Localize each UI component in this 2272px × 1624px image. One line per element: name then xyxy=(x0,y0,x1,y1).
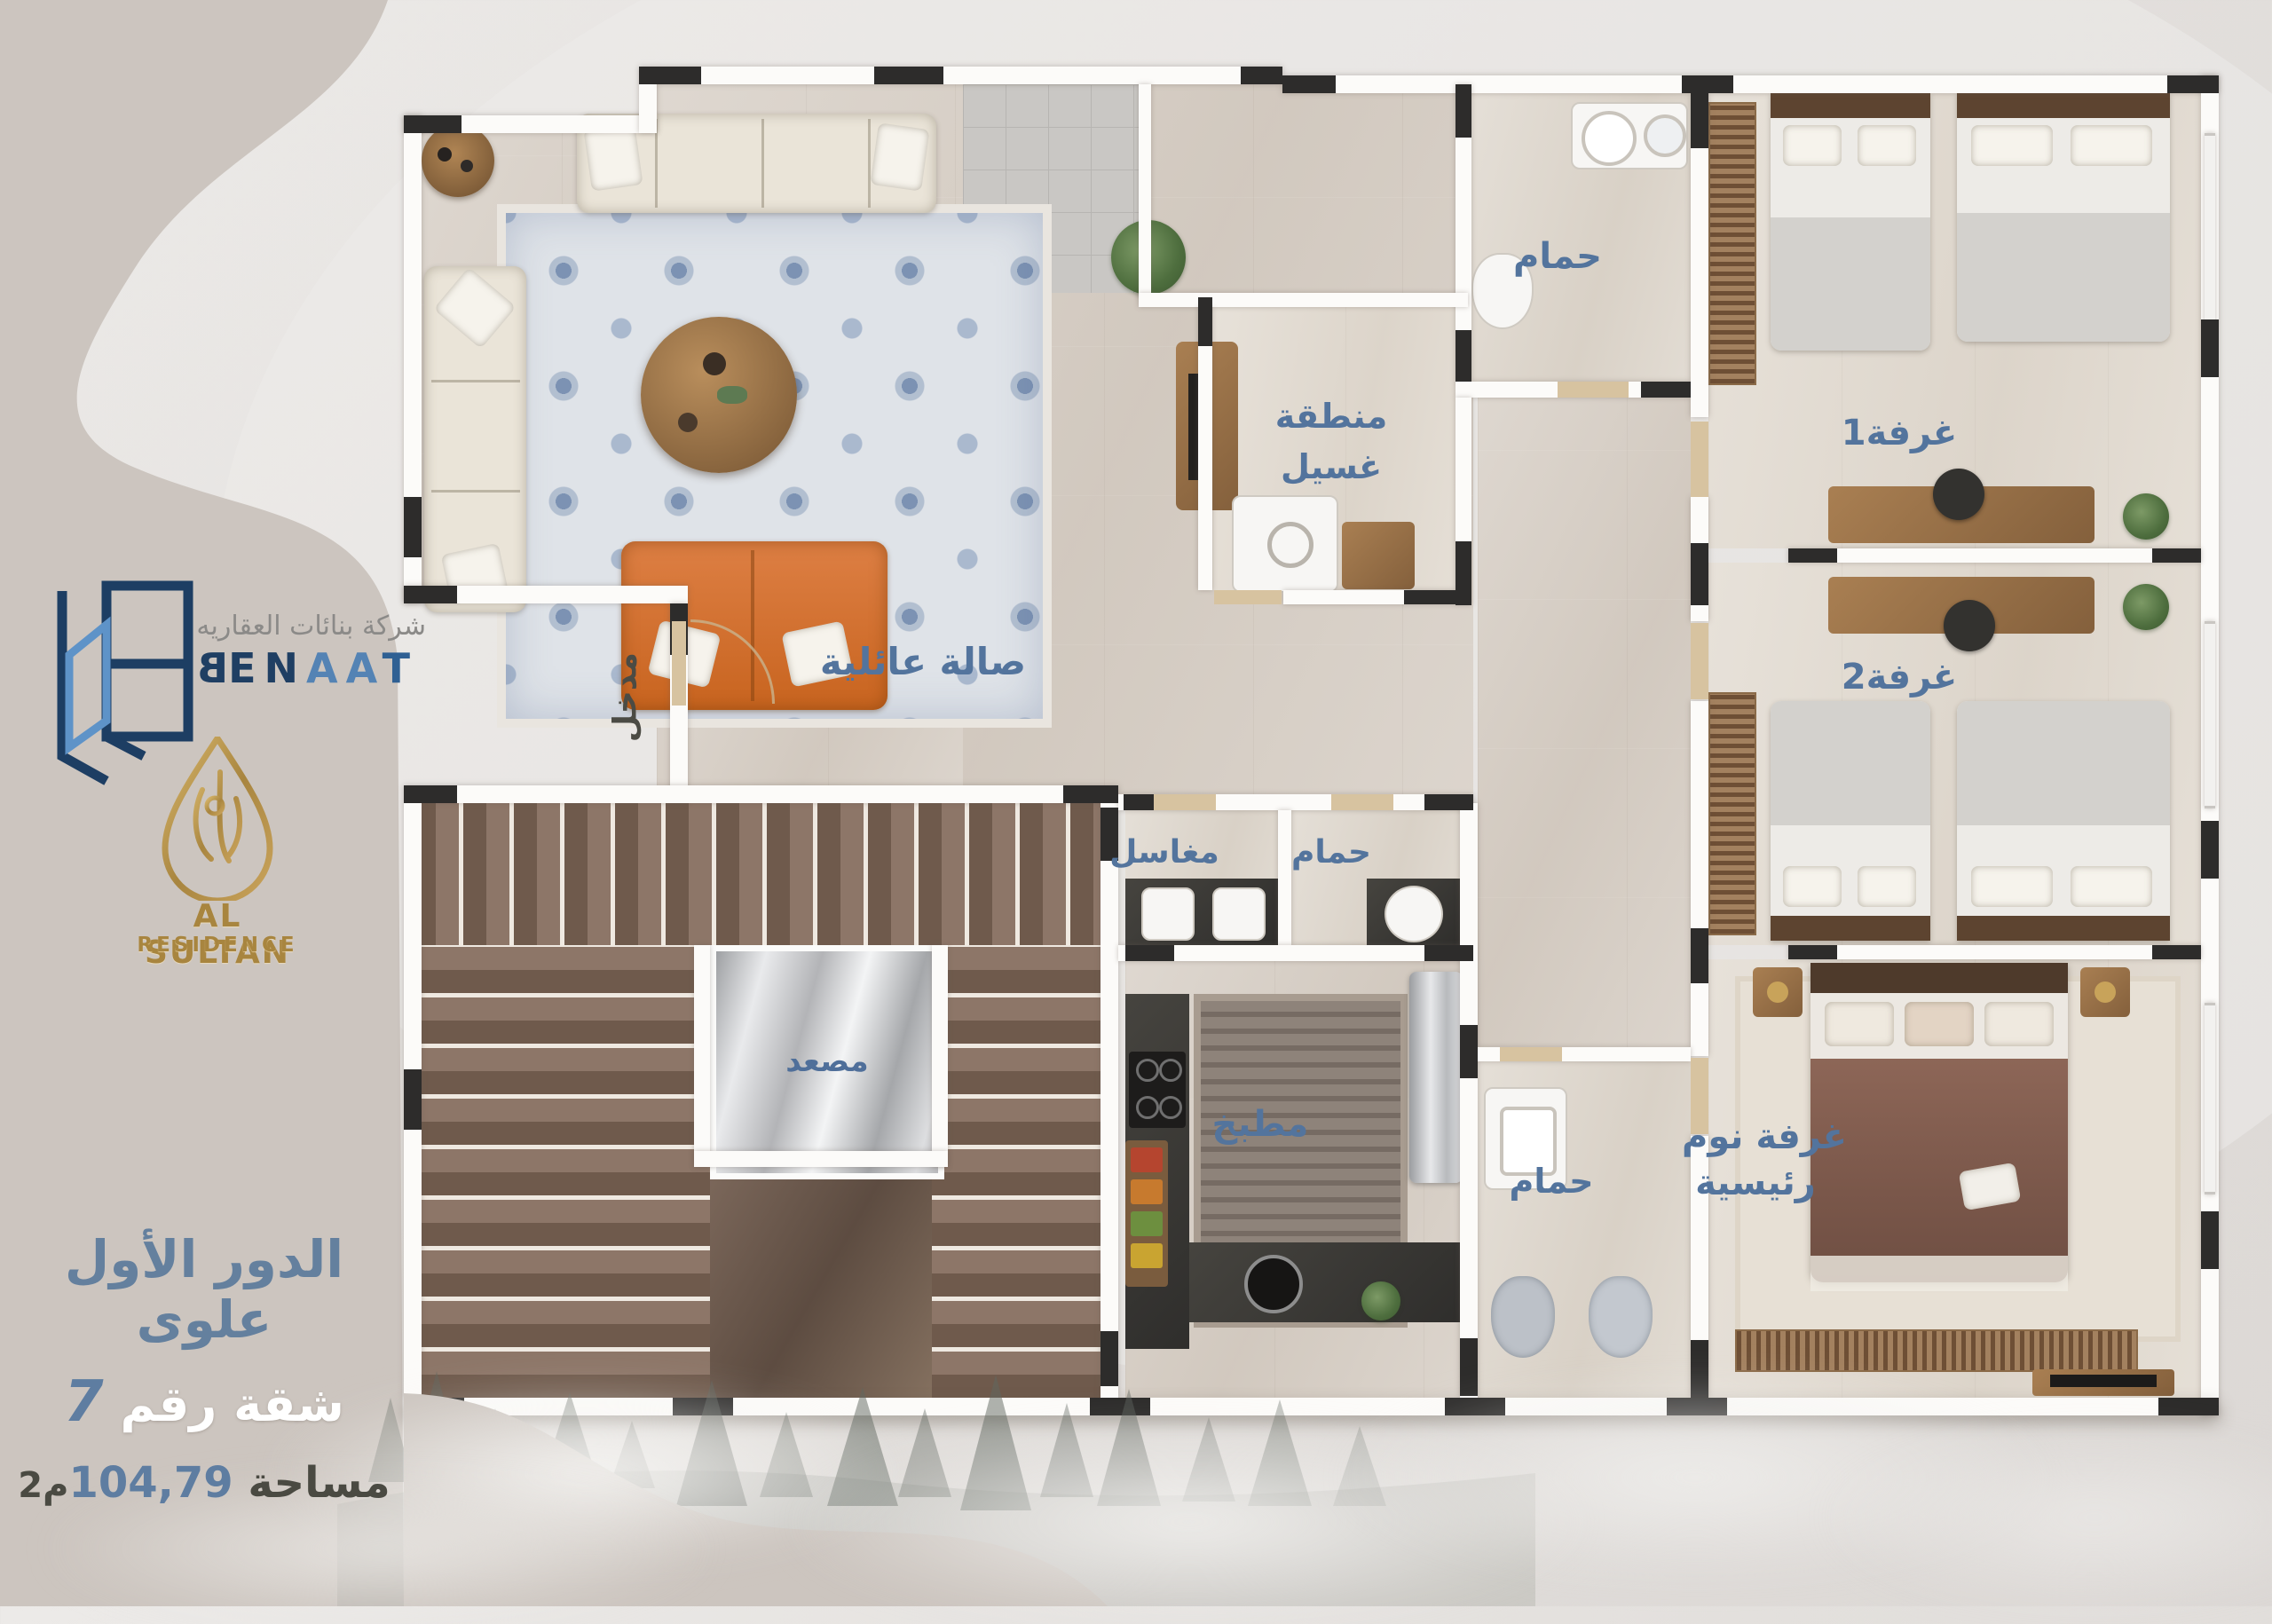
wall-black-segment xyxy=(404,1069,422,1130)
apartment-label: شقة رقم xyxy=(121,1376,344,1432)
bedroom1-bed2 xyxy=(1957,93,2170,342)
wall-black-segment xyxy=(1100,1331,1118,1386)
area-label: مساحة xyxy=(248,1458,390,1508)
laundry-cabinet xyxy=(1342,522,1415,589)
door-sill xyxy=(672,621,686,706)
washing-machine xyxy=(1232,495,1338,593)
label-master-line2: رئيسية xyxy=(1658,1163,1853,1203)
bathroom-mid-toilet xyxy=(1384,886,1443,942)
sink-basin-1 xyxy=(1141,887,1195,941)
wall-black-segment xyxy=(874,67,943,84)
label-bathroom-top: حمام xyxy=(1469,236,1646,277)
window xyxy=(2205,133,2215,325)
wall-black-segment xyxy=(1241,67,1282,84)
benaat-letter-t: T xyxy=(383,644,418,692)
master-tv-console xyxy=(2032,1369,2174,1396)
wall xyxy=(657,67,1282,84)
wall-black-segment xyxy=(639,67,701,84)
wall-black-segment xyxy=(1455,541,1471,605)
apartment-number-line: شقة رقم 7 xyxy=(18,1369,390,1435)
wall xyxy=(1460,803,1478,1398)
label-family-hall: صالة عائلية xyxy=(768,641,1078,683)
stove xyxy=(1129,1052,1186,1128)
benaat-letter-b: B xyxy=(189,644,228,692)
wall xyxy=(1282,75,2219,93)
wall-black-segment xyxy=(1788,945,1837,959)
wall-black-segment xyxy=(1788,548,1837,563)
wall-black-segment xyxy=(404,586,457,603)
label-bathroom-bottom: حمام xyxy=(1471,1163,1631,1202)
bedroom2-bed2 xyxy=(1957,701,2170,941)
wall-black-segment xyxy=(2152,548,2201,563)
wall-black-segment xyxy=(2167,75,2219,93)
benaat-name-english: BENAAT xyxy=(189,644,438,692)
label-elevator: مصعد xyxy=(785,1045,868,1079)
wall-black-segment xyxy=(1691,543,1708,605)
bedroom1-office-chair xyxy=(1933,469,1984,520)
label-laundry-line1: منطقة xyxy=(1242,398,1420,437)
wall-black-segment xyxy=(2152,945,2201,959)
alsultan-emblem-icon xyxy=(158,737,278,901)
wall-black-segment xyxy=(2158,1398,2219,1415)
kitchen-counter-bottom xyxy=(1189,1242,1460,1322)
wall-black-segment xyxy=(2201,319,2219,377)
area-unit: م2 xyxy=(18,1465,68,1506)
wall-black-segment xyxy=(1455,330,1471,382)
label-bedroom1: غرفة1 xyxy=(1810,413,1988,453)
master-wardrobe xyxy=(1735,1329,2138,1372)
wall-black-segment xyxy=(1691,93,1708,148)
wall xyxy=(932,945,948,1167)
coffee-table xyxy=(641,317,797,473)
wall-black-segment xyxy=(404,1398,464,1415)
food-shelf xyxy=(1125,1140,1168,1287)
kitchen-plant xyxy=(1361,1281,1400,1320)
wall-black-segment xyxy=(1090,1398,1150,1415)
wall xyxy=(1788,945,2201,959)
wall-black-segment xyxy=(1404,590,1455,604)
round-side-table xyxy=(422,124,494,197)
bathroom-bottom-bidet xyxy=(1589,1276,1653,1358)
label-bathroom-mid: حمام xyxy=(1260,834,1402,871)
sink-basin-2 xyxy=(1212,887,1266,941)
corridor-floor xyxy=(1478,382,1691,1047)
wall-black-segment xyxy=(1691,928,1708,983)
wall-black-segment xyxy=(404,115,461,133)
wall-black-segment xyxy=(1063,785,1118,803)
floor-title: الدور الأول علوى xyxy=(18,1229,390,1350)
kitchen-sink xyxy=(1244,1255,1303,1313)
wall-black-segment xyxy=(1691,1340,1708,1398)
door-sill xyxy=(1691,623,1708,699)
wall-black-segment xyxy=(1460,1025,1478,1078)
door-sill xyxy=(1214,590,1282,604)
bedroom1-wardrobe xyxy=(1708,102,1756,385)
stairs-lower-right-flight xyxy=(932,945,1100,1398)
wall xyxy=(1788,548,2201,563)
label-laundry-line2: غسيل xyxy=(1242,448,1420,487)
window xyxy=(2205,621,2215,808)
wall-black-segment xyxy=(404,785,457,803)
benaat-letters-aa: AA xyxy=(306,644,383,692)
bathroom-top-vanity xyxy=(1571,102,1688,169)
wall-black-segment xyxy=(1424,945,1473,961)
door-sill xyxy=(1154,794,1216,810)
door-sill xyxy=(1331,794,1393,810)
fridge xyxy=(1409,972,1463,1183)
bedroom2-office-chair xyxy=(1944,600,1995,651)
bedroom2-wardrobe xyxy=(1708,692,1756,935)
label-sinks: مغاسل xyxy=(1093,834,1235,871)
door-sill xyxy=(1558,382,1629,398)
master-nightstand-right xyxy=(2080,967,2130,1017)
window xyxy=(2205,1003,2215,1194)
label-entrance: مدخل xyxy=(607,640,643,755)
bedroom1-bed1 xyxy=(1771,93,1930,351)
stairs-lower-left-flight xyxy=(413,945,710,1398)
unit-info-block: الدور الأول علوى شقة رقم 7 مساحة 104,79م… xyxy=(18,1229,390,1508)
wall-black-segment xyxy=(2201,821,2219,879)
wall-black-segment xyxy=(1682,75,1733,93)
wall-black-segment xyxy=(673,1398,733,1415)
wall-black-segment xyxy=(1667,1398,1727,1415)
benaat-letters-en: EN xyxy=(228,644,306,692)
label-master-line1: غرفة نوم xyxy=(1658,1116,1871,1157)
stairs-landing xyxy=(710,1167,932,1398)
stairs-upper-flight xyxy=(413,803,1100,945)
label-bedroom2: غرفة2 xyxy=(1810,657,1988,698)
door-sill xyxy=(1500,1047,1562,1061)
sofa-left xyxy=(424,266,526,612)
wall xyxy=(694,1151,948,1167)
wall-black-segment xyxy=(2201,1211,2219,1269)
wall-black-segment xyxy=(1455,84,1471,138)
wall-black-segment xyxy=(1460,1338,1478,1396)
master-nightstand-left xyxy=(1753,967,1803,1017)
elevator-cab: مصعد xyxy=(710,945,944,1179)
wall xyxy=(1139,84,1151,297)
area-line: مساحة 104,79م2 xyxy=(18,1458,390,1508)
wall-black-segment xyxy=(1424,794,1473,810)
wall xyxy=(1100,803,1118,1398)
label-kitchen: مطبخ xyxy=(1180,1104,1340,1145)
bedroom2-bed1 xyxy=(1771,701,1930,941)
wall-black-segment xyxy=(1198,297,1212,346)
bathroom-bottom-toilet xyxy=(1491,1276,1555,1358)
door-sill xyxy=(1691,422,1708,497)
wall-black-segment xyxy=(1125,945,1174,961)
wall xyxy=(694,945,710,1167)
bedroom2-plant xyxy=(2123,584,2169,630)
poster-page: { "brand": { "name_ar": "شركة بنائات الع… xyxy=(0,0,2272,1606)
wall xyxy=(1691,701,1708,1056)
alsultan-subtitle: RESIDENCE xyxy=(115,934,319,957)
wall-black-segment xyxy=(404,497,422,557)
wall xyxy=(1278,810,1291,945)
wall-black-segment xyxy=(1282,75,1336,93)
wall xyxy=(1198,307,1212,590)
wall-black-segment xyxy=(1445,1398,1505,1415)
wall-black-segment xyxy=(1641,382,1691,398)
bedroom1-plant xyxy=(2123,493,2169,540)
benaat-name-arabic: شركة بنائات العقاريه xyxy=(191,611,426,642)
area-value: 104,79 xyxy=(68,1458,233,1508)
wall xyxy=(1139,293,1468,307)
wall xyxy=(404,785,1118,803)
apartment-number: 7 xyxy=(64,1369,104,1435)
